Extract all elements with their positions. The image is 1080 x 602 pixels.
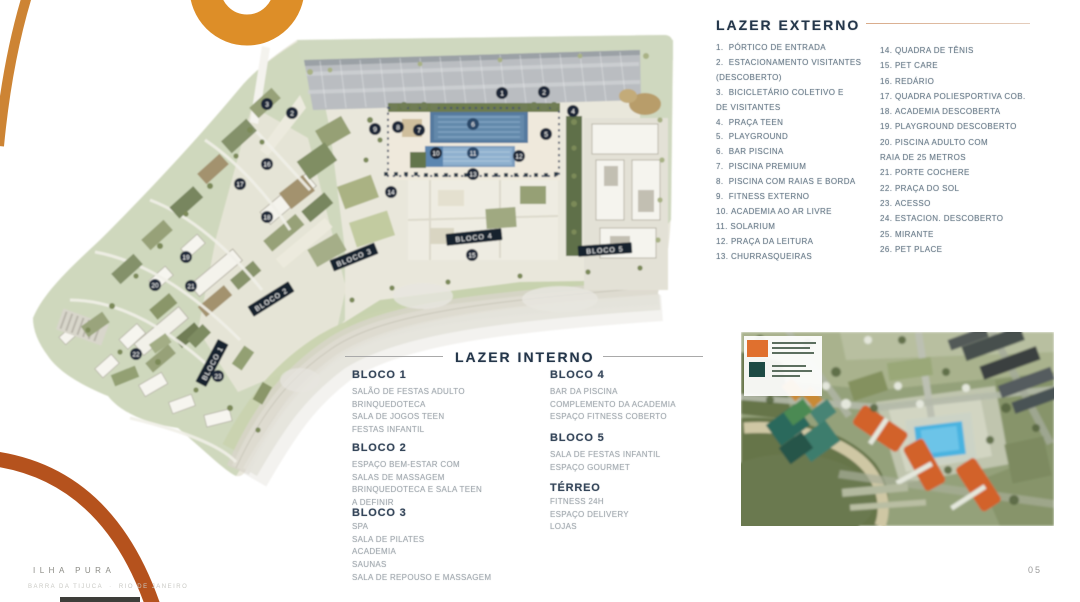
svg-text:21: 21 xyxy=(187,284,195,291)
svg-text:6: 6 xyxy=(471,122,475,129)
svg-text:10: 10 xyxy=(432,151,440,158)
svg-text:9: 9 xyxy=(373,127,377,134)
svg-text:4: 4 xyxy=(571,109,575,116)
svg-text:17: 17 xyxy=(236,182,244,189)
svg-text:16: 16 xyxy=(263,162,271,169)
svg-text:18: 18 xyxy=(263,215,271,222)
svg-text:2: 2 xyxy=(542,90,546,97)
svg-text:5: 5 xyxy=(544,132,548,139)
svg-text:1: 1 xyxy=(500,91,504,98)
svg-text:13: 13 xyxy=(469,172,477,179)
svg-text:20: 20 xyxy=(151,283,159,290)
svg-text:23: 23 xyxy=(214,374,222,381)
svg-text:15: 15 xyxy=(468,253,476,260)
svg-text:8: 8 xyxy=(396,125,400,132)
svg-text:14: 14 xyxy=(387,190,395,197)
svg-text:7: 7 xyxy=(417,128,421,135)
svg-text:11: 11 xyxy=(470,151,477,158)
svg-text:22: 22 xyxy=(132,352,140,359)
svg-text:19: 19 xyxy=(182,255,190,262)
svg-text:3: 3 xyxy=(265,102,269,109)
svg-text:12: 12 xyxy=(515,154,523,161)
svg-text:2: 2 xyxy=(290,111,294,118)
